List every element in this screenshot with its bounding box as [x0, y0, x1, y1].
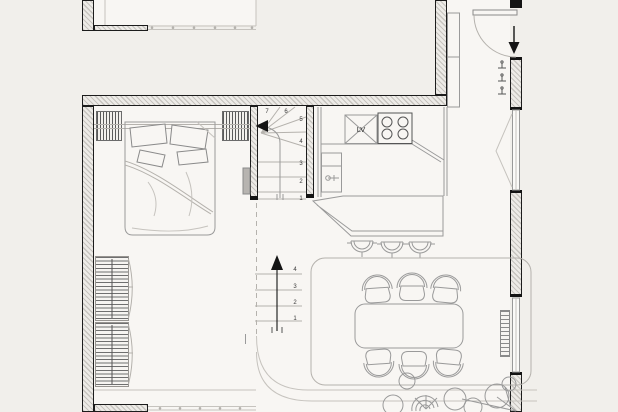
wall-stair-right: [306, 106, 314, 196]
wall-cap: [510, 107, 522, 110]
window-lower: [513, 298, 520, 372]
nightstand-right: [222, 111, 249, 141]
floor-terrace-top: [94, 0, 256, 25]
floor-main: [94, 106, 510, 412]
wall-left: [82, 106, 94, 412]
floor-entry: [447, 0, 510, 106]
wall-right-middle: [510, 190, 522, 297]
wardrobe-lower: [95, 322, 129, 387]
wall-right-lower: [510, 372, 522, 412]
wall-cap: [510, 0, 522, 8]
wall-top: [82, 95, 447, 106]
wall-right-upper: [510, 57, 522, 110]
wall-cap: [306, 194, 314, 198]
wall-cap: [510, 372, 522, 375]
wardrobe-upper: [95, 256, 129, 321]
wall-bottom-left: [94, 404, 148, 412]
wall-cap: [250, 196, 258, 200]
floor-plan: 7 6 5 4 3 2 1 4 3 2 1: [0, 0, 618, 412]
wall-cap: [510, 294, 522, 297]
wall-terrace-vertical: [82, 0, 94, 31]
nightstand-left: [96, 111, 122, 141]
wall-cap: [510, 190, 522, 193]
wall-cap: [510, 57, 522, 60]
wall-entry-left: [435, 0, 447, 95]
entry-direction-arrow-icon: [509, 26, 520, 54]
wall-terrace-horizontal: [94, 25, 148, 31]
wall-stair-left: [250, 106, 258, 198]
radiator: [500, 310, 510, 357]
